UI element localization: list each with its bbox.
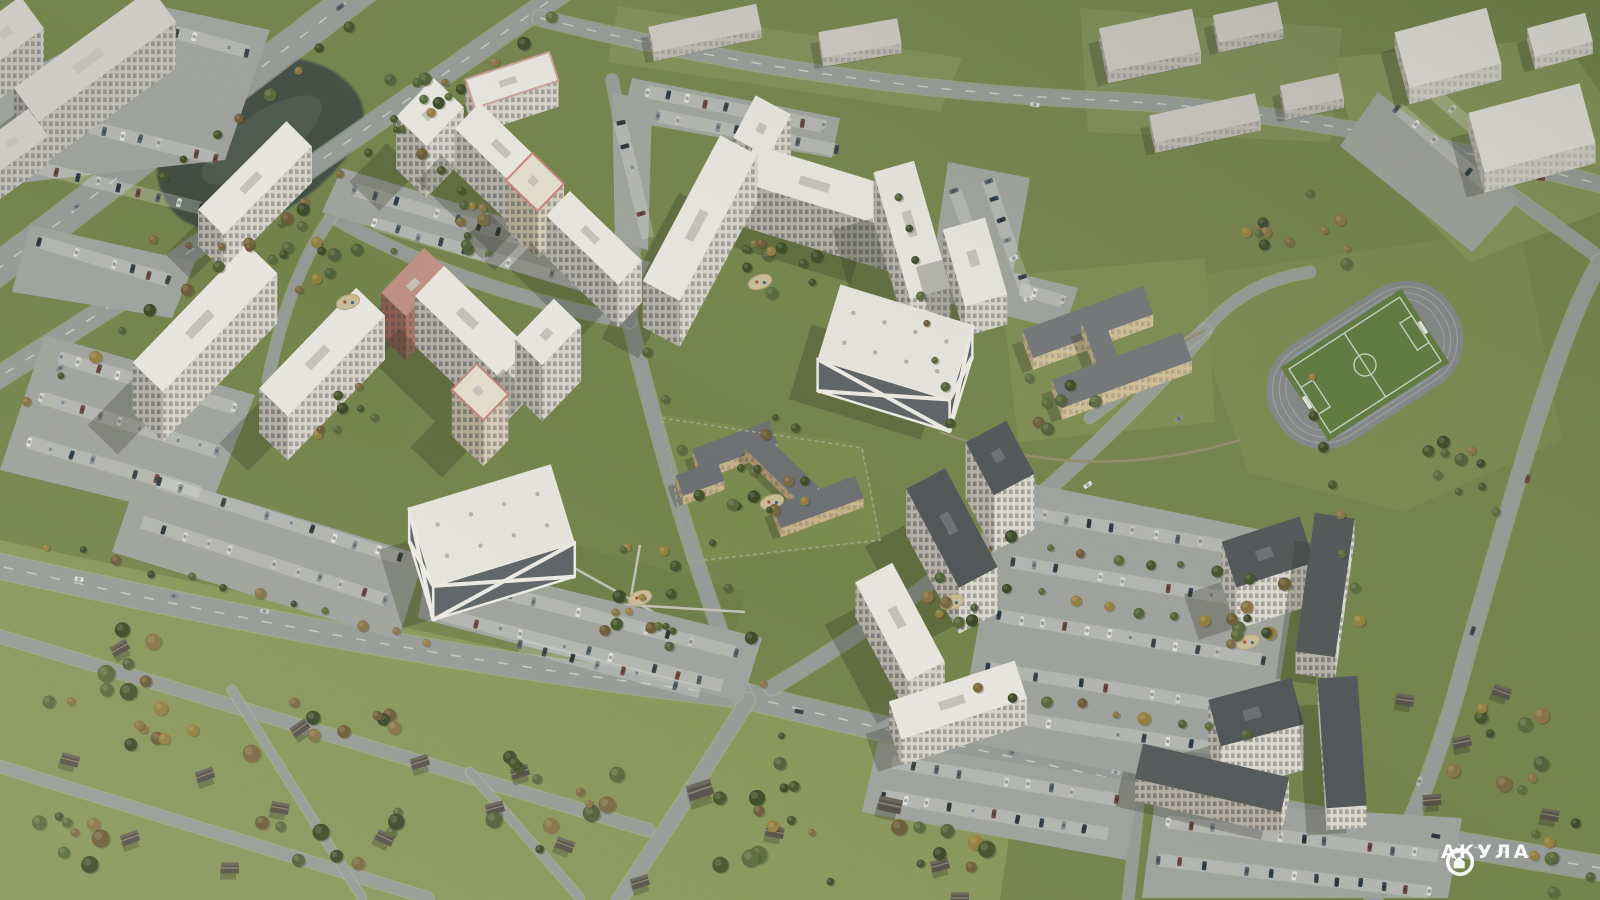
aerial-render: АКУЛА [0,0,1600,900]
grain-overlay [0,0,1600,900]
scene-svg [0,0,1600,900]
